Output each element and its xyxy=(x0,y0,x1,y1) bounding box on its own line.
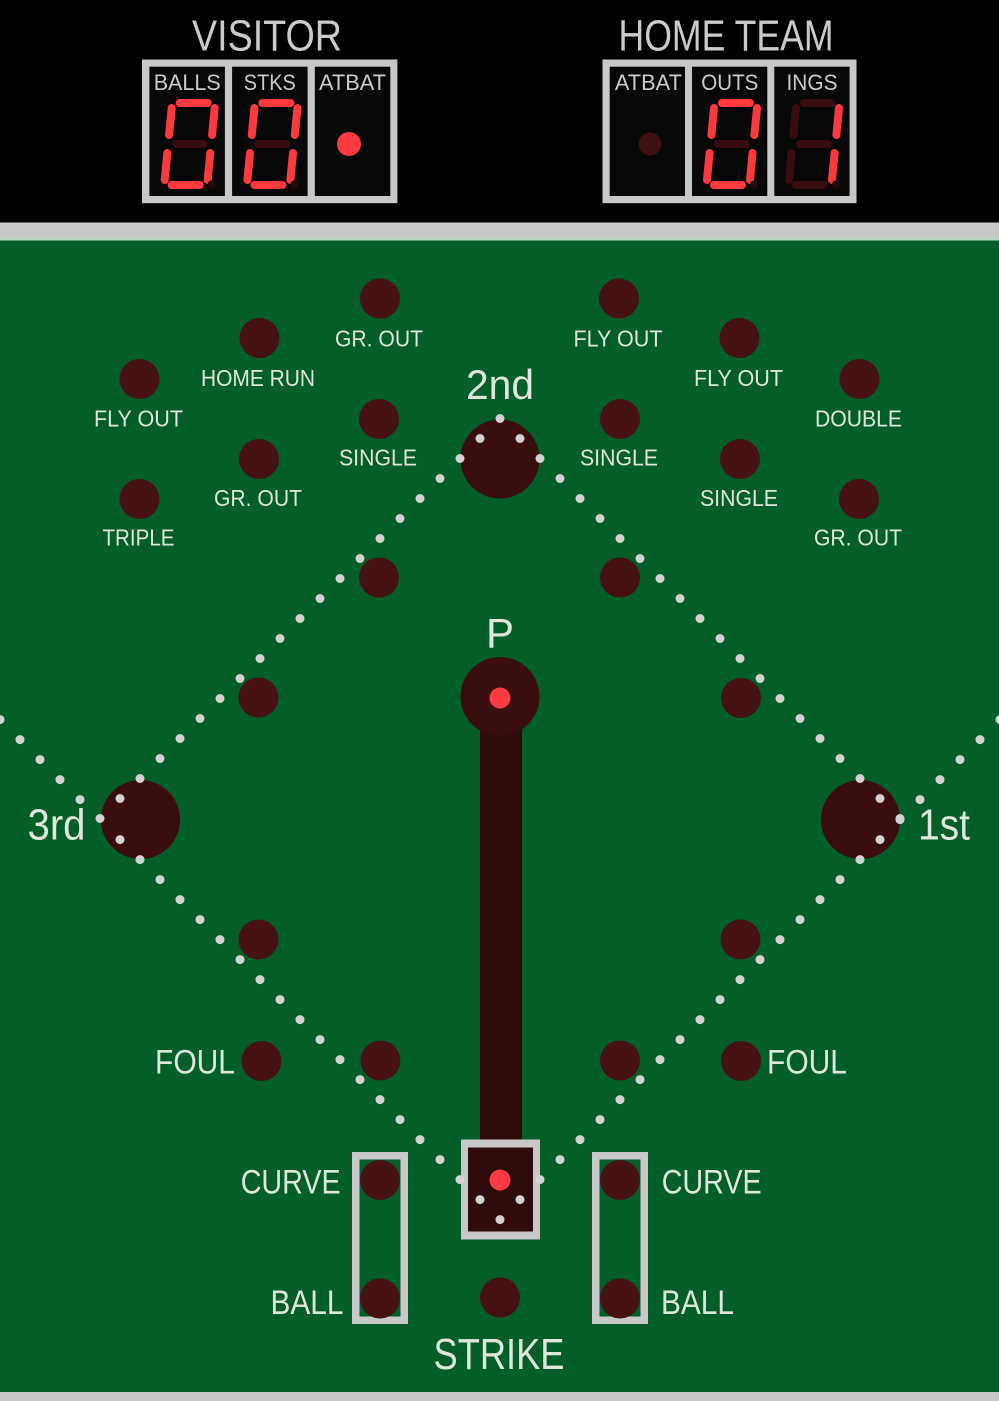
svg-text:SINGLE: SINGLE xyxy=(580,445,658,471)
svg-text:P: P xyxy=(486,610,514,657)
svg-text:STKS: STKS xyxy=(244,70,296,95)
svg-text:3rd: 3rd xyxy=(28,802,86,850)
svg-text:FOUL: FOUL xyxy=(767,1044,847,1082)
svg-text:FLY OUT: FLY OUT xyxy=(574,326,663,352)
svg-text:GR. OUT: GR. OUT xyxy=(214,485,302,511)
svg-text:OUTS: OUTS xyxy=(701,70,758,95)
svg-text:1st: 1st xyxy=(918,802,970,850)
svg-text:GR. OUT: GR. OUT xyxy=(335,326,423,352)
svg-text:HOME RUN: HOME RUN xyxy=(201,365,315,391)
svg-text:SINGLE: SINGLE xyxy=(700,485,778,511)
svg-text:FLY OUT: FLY OUT xyxy=(694,365,783,391)
svg-text:INGS: INGS xyxy=(787,70,838,95)
svg-text:HOME TEAM: HOME TEAM xyxy=(619,13,834,61)
svg-text:BALL: BALL xyxy=(661,1284,734,1322)
svg-text:DOUBLE: DOUBLE xyxy=(815,406,902,432)
svg-text:STRIKE: STRIKE xyxy=(434,1330,565,1379)
svg-text:CURVE: CURVE xyxy=(241,1164,341,1202)
svg-text:BALL: BALL xyxy=(271,1284,344,1322)
svg-text:CURVE: CURVE xyxy=(662,1164,762,1202)
svg-text:SINGLE: SINGLE xyxy=(339,445,417,471)
svg-text:FLY OUT: FLY OUT xyxy=(94,406,183,432)
svg-text:FOUL: FOUL xyxy=(155,1044,235,1082)
svg-text:TRIPLE: TRIPLE xyxy=(103,525,175,551)
svg-text:BALLS: BALLS xyxy=(154,70,221,95)
svg-text:2nd: 2nd xyxy=(466,361,534,408)
svg-text:GR. OUT: GR. OUT xyxy=(814,525,902,551)
svg-text:ATBAT: ATBAT xyxy=(319,70,386,95)
svg-text:ATBAT: ATBAT xyxy=(615,70,682,95)
svg-text:VISITOR: VISITOR xyxy=(192,13,342,61)
